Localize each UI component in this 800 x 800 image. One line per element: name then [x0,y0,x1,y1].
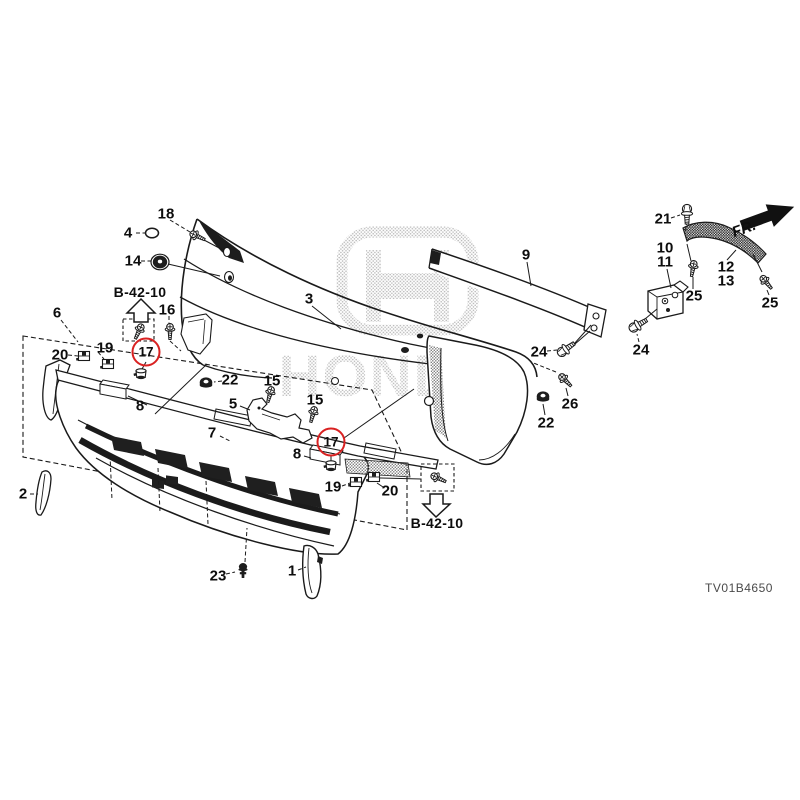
part-label-17-highlighted[interactable]: 17 [132,338,161,367]
down-arrow-icon [423,494,450,517]
part-label-19[interactable]: 19 [97,341,114,356]
part-label-1[interactable]: 1 [288,564,296,579]
grommet-icon [134,369,147,379]
beam-end-plate [584,304,606,337]
screw-icon [758,273,776,291]
part-label-15[interactable]: 15 [307,393,324,408]
reference-link-down[interactable]: B-42-10 [411,515,464,531]
diagram-code: TV01B4650 [705,581,773,595]
part-label-3[interactable]: 3 [305,292,313,307]
strip-2 [36,471,51,515]
bolt-icon [555,339,577,359]
parts-diagram: HONDA [0,0,800,800]
flange-nut-icon [151,254,169,270]
part-label-18[interactable]: 18 [158,207,175,222]
screw-icon [556,371,574,389]
part-label-25[interactable]: 25 [686,289,703,304]
part-label-26[interactable]: 26 [562,397,579,412]
ring-icon [146,228,159,238]
part-label-13[interactable]: 13 [718,274,735,289]
part-label-2[interactable]: 2 [19,487,27,502]
part-label-8[interactable]: 8 [293,447,301,462]
clip-icon [366,473,380,482]
part-label-22[interactable]: 22 [538,416,555,431]
part-label-14[interactable]: 14 [125,254,142,269]
part-label-7[interactable]: 7 [208,426,216,441]
part-label-16[interactable]: 16 [159,303,176,318]
strip-1 [303,545,321,598]
screw-icon [188,228,207,243]
part-label-17-highlighted[interactable]: 17 [317,428,346,457]
reference-link-up[interactable]: B-42-10 [114,284,167,300]
sensor-bracket [648,281,688,319]
part-label-23[interactable]: 23 [210,569,227,584]
bolt-icon [627,315,650,334]
part-label-9[interactable]: 9 [522,248,530,263]
screw-icon [429,470,448,485]
part-label-20[interactable]: 20 [382,484,399,499]
part-label-21[interactable]: 21 [655,212,672,227]
clip-icon [76,352,90,361]
screw-icon [165,324,175,340]
part-label-24[interactable]: 24 [633,343,650,358]
part-label-11[interactable]: 11 [657,255,673,270]
bolt-icon [681,204,692,224]
part-label-22[interactable]: 22 [222,373,239,388]
diagram-line-art: HONDA [0,0,800,800]
part-label-20[interactable]: 20 [52,348,69,363]
bumper-corner-piece [425,336,528,464]
clip-icon [100,360,114,369]
part-label-24[interactable]: 24 [531,345,548,360]
rivet-icon [238,563,247,578]
screw-icon [687,260,699,277]
part-label-15[interactable]: 15 [264,374,281,389]
part-label-5[interactable]: 5 [229,397,237,412]
part-label-19[interactable]: 19 [325,480,342,495]
nut-icon [200,377,212,387]
part-label-4[interactable]: 4 [124,226,132,241]
nut-icon [537,391,549,401]
part-label-25[interactable]: 25 [762,296,779,311]
part-label-6[interactable]: 6 [53,306,61,321]
clip-icon [348,478,362,487]
part-label-8[interactable]: 8 [136,399,144,414]
